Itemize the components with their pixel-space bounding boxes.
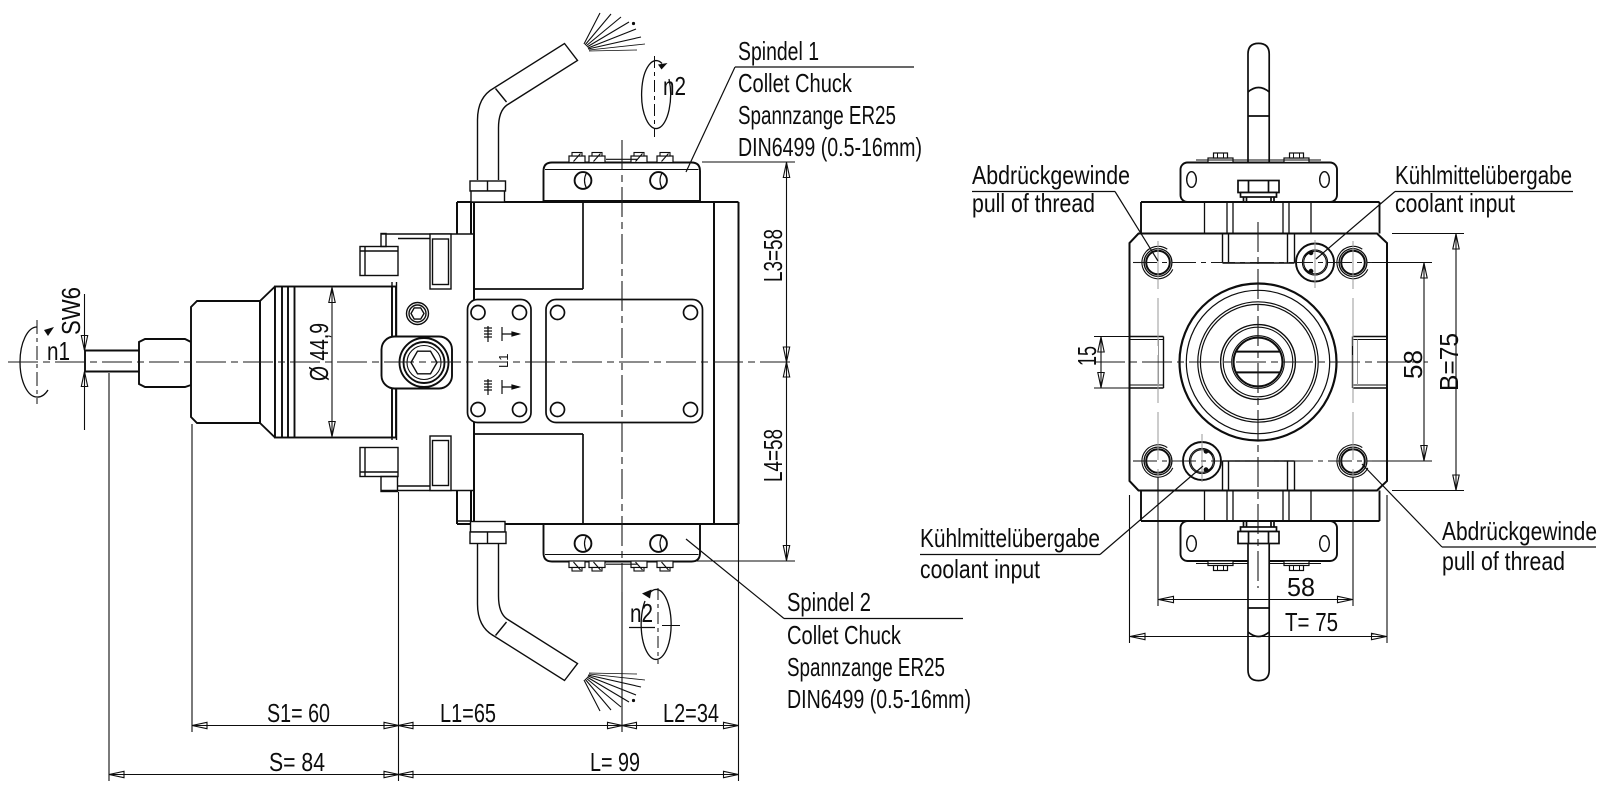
svg-text:T= 75: T= 75 xyxy=(1285,607,1338,637)
svg-text:L2=34: L2=34 xyxy=(663,698,719,728)
svg-text:coolant input: coolant input xyxy=(920,554,1041,584)
svg-text:L3=58: L3=58 xyxy=(758,229,788,282)
svg-text:Collet Chuck: Collet Chuck xyxy=(738,68,853,98)
svg-text:L1=65: L1=65 xyxy=(440,698,496,728)
svg-text:58: 58 xyxy=(1398,350,1428,379)
svg-text:Kühlmittelübergabe: Kühlmittelübergabe xyxy=(920,523,1100,553)
svg-text:Ø 44,9: Ø 44,9 xyxy=(304,323,334,381)
svg-text:Spindel 2: Spindel 2 xyxy=(787,587,871,617)
svg-text:Collet Chuck: Collet Chuck xyxy=(787,620,902,650)
svg-text:pull of thread: pull of thread xyxy=(972,188,1095,218)
svg-text:L1: L1 xyxy=(496,354,511,368)
svg-text:15: 15 xyxy=(1072,346,1102,366)
svg-text:DIN6499 (0.5-16mm): DIN6499 (0.5-16mm) xyxy=(787,684,971,714)
svg-text:S1= 60: S1= 60 xyxy=(267,698,330,728)
svg-text:Spannzange ER25: Spannzange ER25 xyxy=(738,100,896,130)
svg-text:58: 58 xyxy=(1287,572,1315,602)
svg-text:L4=58: L4=58 xyxy=(758,429,788,482)
svg-text:S= 84: S= 84 xyxy=(269,747,325,777)
svg-text:SW6: SW6 xyxy=(56,287,86,335)
svg-text:pull of thread: pull of thread xyxy=(1442,546,1565,576)
svg-text:Abdrückgewinde: Abdrückgewinde xyxy=(972,160,1130,190)
svg-text:Spannzange ER25: Spannzange ER25 xyxy=(787,652,945,682)
svg-text:B=75: B=75 xyxy=(1434,333,1464,391)
svg-text:n2: n2 xyxy=(630,598,653,628)
svg-text:Kühlmittelübergabe: Kühlmittelübergabe xyxy=(1395,160,1572,190)
svg-text:coolant input: coolant input xyxy=(1395,188,1516,218)
svg-text:Spindel 1: Spindel 1 xyxy=(738,36,819,66)
svg-text:DIN6499 (0.5-16mm): DIN6499 (0.5-16mm) xyxy=(738,132,922,162)
svg-text:n2: n2 xyxy=(663,71,686,101)
svg-text:Abdrückgewinde: Abdrückgewinde xyxy=(1442,516,1597,546)
svg-text:L= 99: L= 99 xyxy=(590,747,640,777)
